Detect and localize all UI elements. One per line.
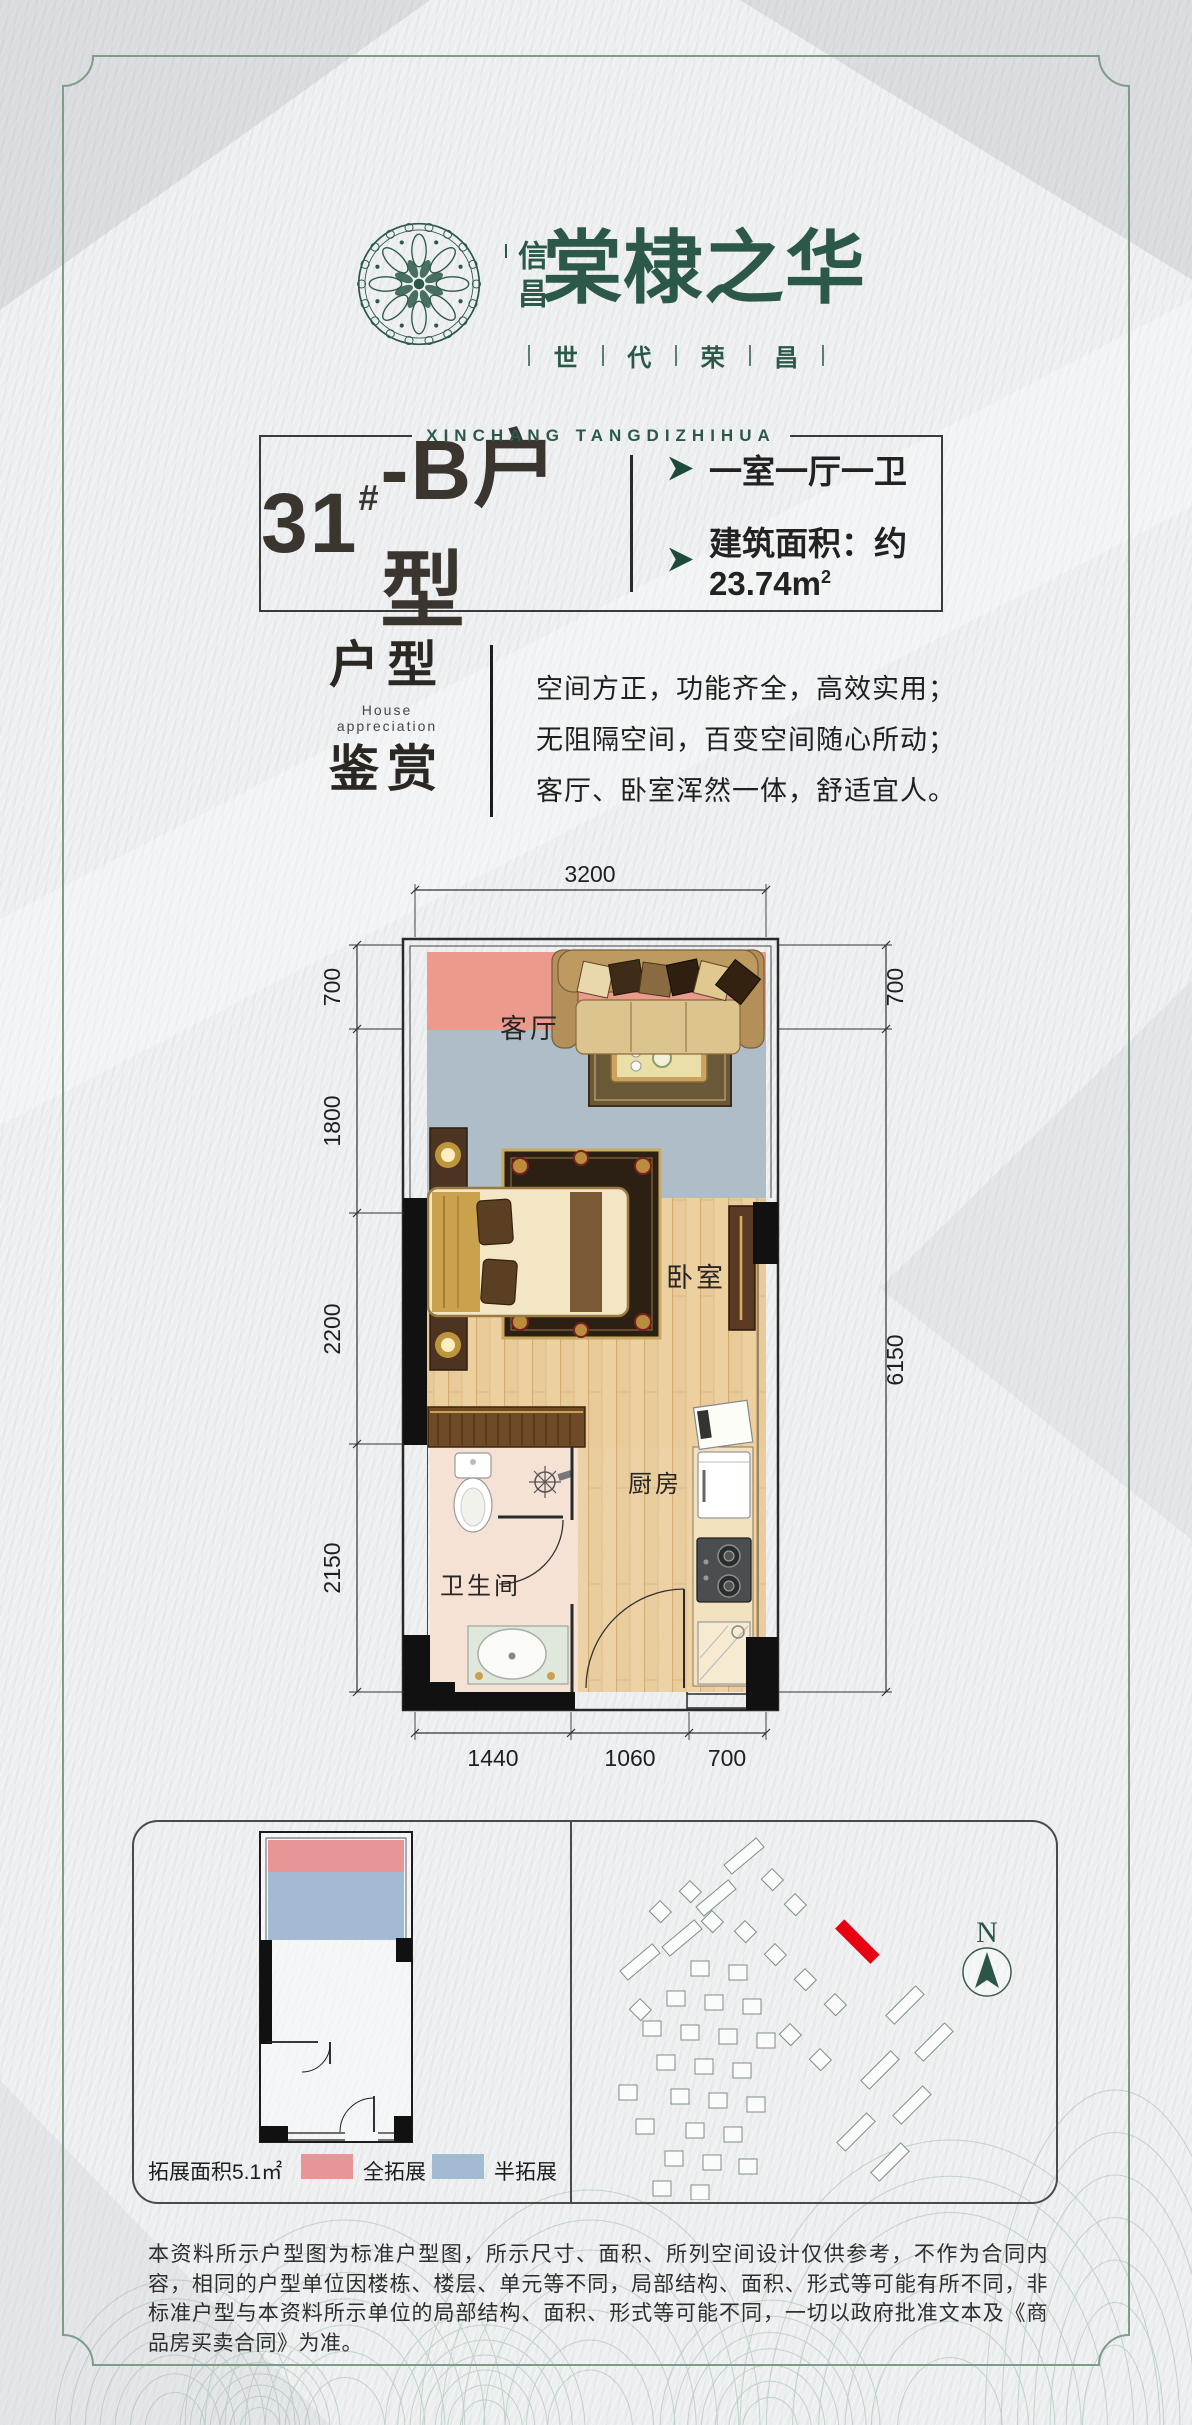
legend-full-swatch [301, 2154, 353, 2179]
appreciation-lines: 空间方正，功能齐全，高效实用； 无阻隔空间，百变空间随心所动； 客厅、卧室浑然一… [536, 664, 956, 817]
bed [428, 1188, 628, 1316]
room-label-bath: 卫生间 [440, 1573, 521, 1600]
slogan-char: 荣 [701, 338, 725, 373]
brand-romanized: XINCHANG TANGDIZHIHUA [426, 426, 776, 446]
site-plan: N [575, 1825, 1055, 2200]
dim-left-700: 700 [319, 968, 345, 1006]
appreciation-word2: 鉴赏 [312, 744, 462, 794]
appreciation-line: 客厅、卧室浑然一体，舒适宜人。 [536, 766, 956, 817]
appreciation-en: House appreciation [312, 702, 462, 734]
extension-mini-plan [252, 1828, 420, 2150]
stove [697, 1538, 751, 1602]
dim-bottom-1060: 1060 [604, 1745, 655, 1771]
compass-icon: N [963, 1916, 1011, 1996]
dim-bottom-700: 700 [708, 1745, 746, 1771]
bed-bench [428, 1407, 585, 1447]
slogan-char: 世 [554, 338, 578, 373]
divider [259, 435, 412, 437]
brand-name: 棠棣之华 [542, 222, 866, 318]
brand-medallion-icon [352, 217, 486, 351]
divider [602, 345, 604, 366]
slogan-char: 代 [627, 338, 651, 373]
extension-area-label: 拓展面积5.1㎡ [148, 2156, 282, 2186]
feature-rooms-row: 一室一厅一卫 [669, 445, 941, 493]
appreciation-heading: 户型 House appreciation 鉴赏 [312, 640, 462, 794]
room-label-bedroom: 卧室 [666, 1263, 726, 1293]
divider [822, 345, 824, 366]
toilet [454, 1453, 492, 1532]
unit-name: 31#-B户型 [261, 437, 630, 610]
desk [693, 1400, 752, 1449]
poster-page: 信昌 棠棣之华 世 代 荣 昌 XINCHANG TANGDIZHIHUA 31… [0, 0, 1192, 2425]
divider [528, 345, 530, 366]
unit-title-box: XINCHANG TANGDIZHIHUA 31#-B户型 一室一厅一卫 建筑面… [259, 437, 943, 612]
divider [675, 345, 677, 366]
room-label-kitchen: 厨房 [628, 1471, 682, 1498]
site-buildings [619, 1838, 953, 2200]
dim-right-6150: 6150 [882, 1334, 908, 1385]
arrow-icon [669, 548, 693, 572]
bg-facet [880, 980, 1192, 1540]
appreciation-word1: 户型 [312, 640, 462, 690]
unit-features: 一室一厅一卫 建筑面积：约23.74m2 [633, 437, 941, 610]
dim-right-700: 700 [882, 968, 908, 1006]
unit-number: 31 [261, 475, 358, 572]
brand-slogan: 世 代 荣 昌 [528, 338, 824, 373]
room-label-living: 客厅 [500, 1014, 560, 1044]
romanized-rule: XINCHANG TANGDIZHIHUA [259, 426, 943, 446]
mini-zone-half [268, 1872, 404, 1940]
appreciation-line: 无阻隔空间，百变空间随心所动； [536, 715, 956, 766]
feature-area-text: 建筑面积：约23.74m2 [709, 517, 941, 603]
appreciation-line: 空间方正，功能齐全，高效实用； [536, 664, 956, 715]
arrow-icon [669, 457, 693, 481]
dim-left-2200: 2200 [319, 1303, 345, 1354]
feature-area-row: 建筑面积：约23.74m2 [669, 517, 941, 603]
slogan-char: 昌 [774, 338, 798, 373]
dim-bottom-1440: 1440 [467, 1745, 518, 1771]
legend-full-label: 全拓展 [363, 2156, 426, 2186]
floor-plan: 客厅 卧室 卫生间 厨房 [315, 860, 925, 1780]
divider [505, 244, 507, 258]
divider [490, 645, 493, 817]
vanity-sink [468, 1626, 568, 1684]
divider [749, 345, 751, 366]
mini-zone-full [268, 1840, 404, 1872]
svg-text:N: N [976, 1916, 998, 1949]
feature-rooms-text: 一室一厅一卫 [709, 445, 907, 493]
dim-top: 3200 [564, 861, 615, 887]
divider [790, 435, 943, 437]
kitchen-sink-cabinet [698, 1622, 750, 1684]
legend-half-swatch [432, 2154, 484, 2179]
dim-left-2150: 2150 [319, 1542, 345, 1593]
fridge [698, 1452, 750, 1518]
dim-left-1800: 1800 [319, 1095, 345, 1146]
divider [570, 1822, 572, 2202]
wardrobe [729, 1206, 755, 1330]
disclaimer-text: 本资料所示户型图为标准户型图，所示尺寸、面积、所列空间设计仅供参考，不作为合同内… [148, 2240, 1048, 2358]
unit-hash: # [358, 480, 380, 516]
legend-half-label: 半拓展 [494, 2156, 557, 2186]
highlight-building [835, 1919, 880, 1964]
